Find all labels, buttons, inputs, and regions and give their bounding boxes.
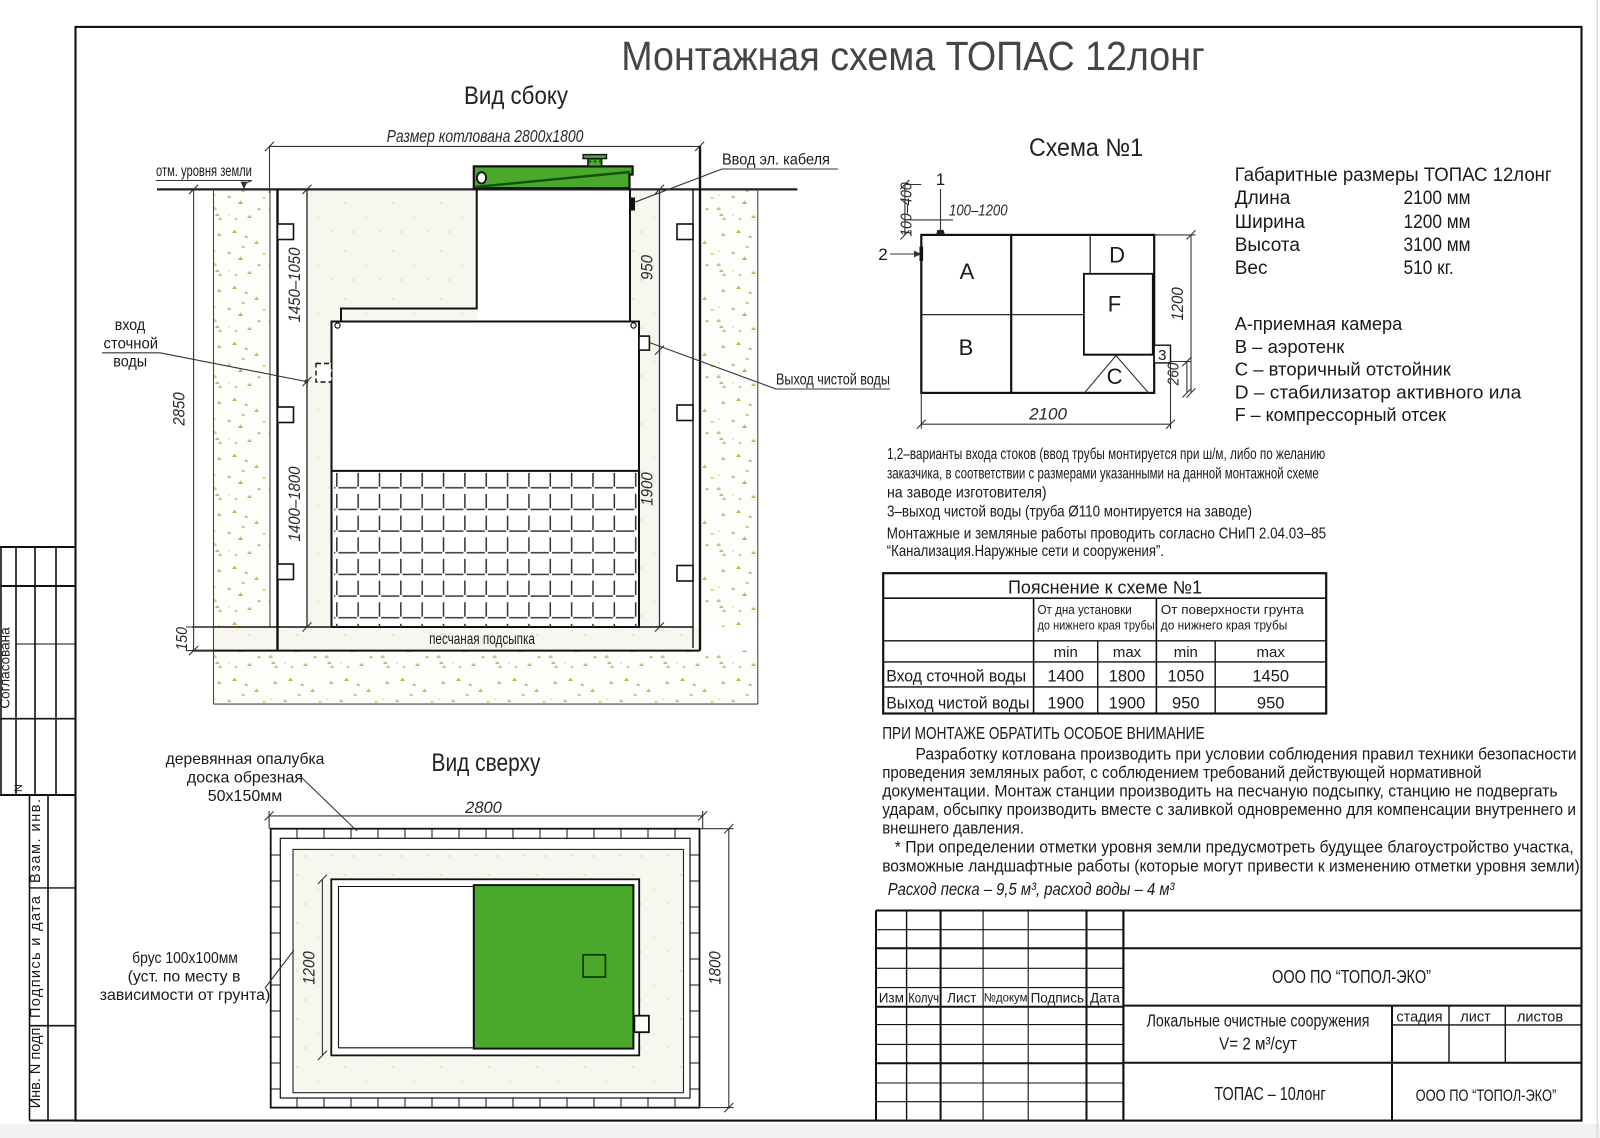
svg-text:брус 100х100мм: брус 100х100мм bbox=[132, 949, 238, 967]
svg-text:C: C bbox=[1107, 364, 1123, 389]
svg-text:* При определении отметки уров: * При определении отметки уровня земли п… bbox=[895, 838, 1574, 857]
svg-text:проведения земляных работ, с с: проведения земляных работ, с соблюдением… bbox=[882, 763, 1481, 782]
svg-text:1050: 1050 bbox=[1167, 668, 1204, 686]
svg-text:150: 150 bbox=[173, 626, 191, 650]
svg-text:внешнего давления.: внешнего давления. bbox=[882, 819, 1024, 838]
svg-text:документации. Монтаж станции п: документации. Монтаж станции производить… bbox=[882, 782, 1557, 801]
svg-text:зависимости от грунта): зависимости от грунта) bbox=[100, 987, 270, 1004]
svg-text:2: 2 bbox=[878, 245, 887, 264]
svg-text:2800: 2800 bbox=[464, 799, 503, 817]
svg-text:Выход чистой воды: Выход чистой воды bbox=[776, 371, 890, 389]
svg-text:N: N bbox=[13, 784, 25, 792]
svg-text:Разработку котлована производи: Разработку котлована производить при усл… bbox=[916, 745, 1577, 764]
svg-text:1,2–варианты входа стоков (вв: 1,2–варианты входа стоков (ввод трубы мо… bbox=[887, 444, 1325, 462]
svg-text:Вход сточной воды: Вход сточной воды bbox=[886, 667, 1026, 685]
svg-text:1200 мм: 1200 мм bbox=[1404, 211, 1471, 232]
svg-text:3100 мм: 3100 мм bbox=[1404, 234, 1471, 255]
svg-text:2100: 2100 bbox=[1028, 405, 1067, 424]
svg-text:Схема №1: Схема №1 bbox=[1029, 134, 1143, 162]
svg-text:1400: 1400 bbox=[1047, 668, 1084, 686]
svg-text:Габаритные размеры ТОПАС 12лон: Габаритные размеры ТОПАС 12лонг bbox=[1235, 164, 1552, 185]
svg-text:min: min bbox=[1174, 644, 1198, 661]
svg-text:доска обрезная: доска обрезная bbox=[187, 770, 303, 787]
svg-text:1900: 1900 bbox=[1047, 695, 1084, 713]
svg-text:950: 950 bbox=[1172, 695, 1200, 713]
svg-text:Вес: Вес bbox=[1235, 258, 1268, 279]
svg-text:Монтажная схема ТОПАС 12лонг: Монтажная схема ТОПАС 12лонг bbox=[621, 34, 1204, 80]
svg-text:ООО ПО “ТОПОЛ-ЭКО”: ООО ПО “ТОПОЛ-ЭКО” bbox=[1272, 966, 1431, 987]
svg-text:1800: 1800 bbox=[1109, 668, 1146, 686]
svg-text:max: max bbox=[1113, 644, 1142, 661]
svg-text:D – стабилизатор активного ил: D – стабилизатор активного ила bbox=[1235, 382, 1522, 403]
svg-text:Длина: Длина bbox=[1235, 188, 1291, 209]
svg-text:на заводе изготовителя): на заводе изготовителя) bbox=[887, 484, 1047, 502]
svg-text:2850: 2850 bbox=[171, 392, 189, 426]
svg-text:950: 950 bbox=[639, 255, 657, 280]
svg-text:Согласована: Согласована bbox=[0, 627, 13, 709]
svg-text:1450–1050: 1450–1050 bbox=[286, 247, 304, 322]
svg-text:A: A bbox=[960, 259, 975, 284]
svg-text:Монтажные и земляные работы пр: Монтажные и земляные работы проводить со… bbox=[887, 526, 1326, 543]
svg-text:1900: 1900 bbox=[1109, 695, 1146, 713]
svg-text:3–выход чистой воды (труба Ø11: 3–выход чистой воды (труба Ø110 монтируе… bbox=[887, 503, 1252, 520]
svg-text:Размер котлована 2800х1800: Размер котлована 2800х1800 bbox=[387, 128, 584, 147]
svg-text:Ширина: Ширина bbox=[1235, 212, 1306, 233]
svg-text:1900: 1900 bbox=[639, 472, 657, 505]
svg-text:F – компрессорный отсек: F – компрессорный отсек bbox=[1235, 405, 1447, 425]
svg-text:А-приемная камера: А-приемная камера bbox=[1235, 313, 1403, 334]
svg-text:лист: лист bbox=[1460, 1010, 1491, 1026]
svg-text:Инв. N подп: Инв. N подп bbox=[28, 1028, 44, 1109]
svg-text:деревянная опалубка: деревянная опалубка bbox=[166, 751, 325, 768]
svg-text:отм. уровня земли: отм. уровня земли bbox=[156, 161, 252, 180]
svg-text:Высота: Высота bbox=[1235, 235, 1301, 256]
svg-text:Вид сверху: Вид сверху bbox=[432, 748, 541, 776]
svg-text:950: 950 bbox=[1257, 695, 1285, 713]
svg-text:Изм: Изм bbox=[879, 991, 904, 1006]
svg-text:260: 260 bbox=[1166, 363, 1183, 387]
svg-text:Расход песка – 9,5 м³, расход: Расход песка – 9,5 м³, расход воды – 4 м… bbox=[888, 880, 1175, 899]
svg-text:до нижнего края трубы: до нижнего края трубы bbox=[1038, 619, 1155, 633]
svg-text:сточной: сточной bbox=[104, 335, 159, 353]
svg-text:заказчика, в соответствии с ра: заказчика, в соответствии с размерами ук… bbox=[887, 464, 1319, 482]
svg-text:1200: 1200 bbox=[301, 951, 319, 984]
svg-text:Вид сбоку: Вид сбоку bbox=[464, 83, 568, 110]
svg-text:Выход чистой воды: Выход чистой воды bbox=[886, 694, 1029, 712]
svg-text:max: max bbox=[1257, 644, 1286, 661]
svg-text:ООО ПО “ТОПОЛ-ЭКО”: ООО ПО “ТОПОЛ-ЭКО” bbox=[1416, 1088, 1557, 1106]
svg-text:стадия: стадия bbox=[1396, 1010, 1442, 1026]
svg-text:От поверхности грунта: От поверхности грунта bbox=[1161, 602, 1305, 616]
svg-text:Ввод эл. кабеля: Ввод эл. кабеля bbox=[722, 151, 830, 169]
svg-text:вход: вход bbox=[115, 316, 146, 334]
svg-text:возможные ландшафтные работы (: возможные ландшафтные работы (которые мо… bbox=[882, 857, 1579, 876]
svg-text:Дата: Дата bbox=[1090, 991, 1120, 1006]
svg-text:V= 2 м³/сут: V= 2 м³/сут bbox=[1219, 1033, 1297, 1054]
svg-text:до нижнего края трубы: до нижнего края трубы bbox=[1161, 618, 1288, 632]
svg-text:Локальные очистные сооружения: Локальные очистные сооружения bbox=[1147, 1012, 1370, 1031]
svg-text:50х150мм: 50х150мм bbox=[208, 788, 283, 805]
svg-text:2100 мм: 2100 мм bbox=[1404, 187, 1471, 208]
svg-text:min: min bbox=[1054, 644, 1078, 661]
svg-text:От дна установки: От дна установки bbox=[1038, 603, 1132, 617]
svg-text:3: 3 bbox=[1158, 347, 1166, 364]
svg-text:ПРИ МОНТАЖЕ ОБРАТИТЬ ОСОБОЕ ВН: ПРИ МОНТАЖЕ ОБРАТИТЬ ОСОБОЕ ВНИМАНИЕ bbox=[882, 724, 1204, 743]
svg-text:F: F bbox=[1108, 292, 1121, 317]
svg-text:№докум: №докум bbox=[984, 991, 1028, 1004]
svg-text:С – вторичный отстойник: С – вторичный отстойник bbox=[1235, 359, 1452, 380]
svg-text:песчаная подсыпка: песчаная подсыпка bbox=[429, 629, 535, 647]
svg-text:Подпись: Подпись bbox=[1031, 991, 1084, 1006]
svg-text:ТОПАС – 10лонг: ТОПАС – 10лонг bbox=[1214, 1085, 1325, 1105]
svg-text:1: 1 bbox=[936, 170, 945, 189]
svg-text:Взам. инв.: Взам. инв. bbox=[28, 799, 44, 883]
svg-text:1800: 1800 bbox=[707, 951, 725, 984]
svg-text:510 кг.: 510 кг. bbox=[1404, 257, 1454, 278]
svg-text:1200: 1200 bbox=[1169, 287, 1187, 320]
svg-text:Пояснение к схеме №1: Пояснение к схеме №1 bbox=[1008, 578, 1202, 598]
svg-text:100–1200: 100–1200 bbox=[949, 203, 1008, 220]
svg-text:воды: воды bbox=[113, 353, 147, 371]
svg-text:листов: листов bbox=[1517, 1010, 1563, 1026]
svg-text:B: B bbox=[959, 335, 974, 360]
svg-text:Колуч: Колуч bbox=[908, 991, 939, 1006]
svg-text:100–400: 100–400 bbox=[899, 182, 916, 237]
svg-text:(уст. по месту в: (уст. по месту в bbox=[128, 968, 241, 985]
svg-text:“Канализация.Наружные сети и с: “Канализация.Наружные сети и сооружения”… bbox=[887, 543, 1164, 560]
svg-text:В – аэротенк: В – аэротенк bbox=[1235, 336, 1346, 357]
svg-text:Подпись и дата: Подпись и дата bbox=[28, 895, 44, 1018]
svg-text:1450: 1450 bbox=[1252, 668, 1289, 686]
svg-text:1400–1800: 1400–1800 bbox=[286, 466, 304, 541]
svg-text:Лист: Лист bbox=[947, 991, 976, 1006]
svg-text:D: D bbox=[1109, 243, 1125, 268]
svg-text:ударам, обсыпку производить вм: ударам, обсыпку производить вместе с зал… bbox=[882, 800, 1576, 819]
